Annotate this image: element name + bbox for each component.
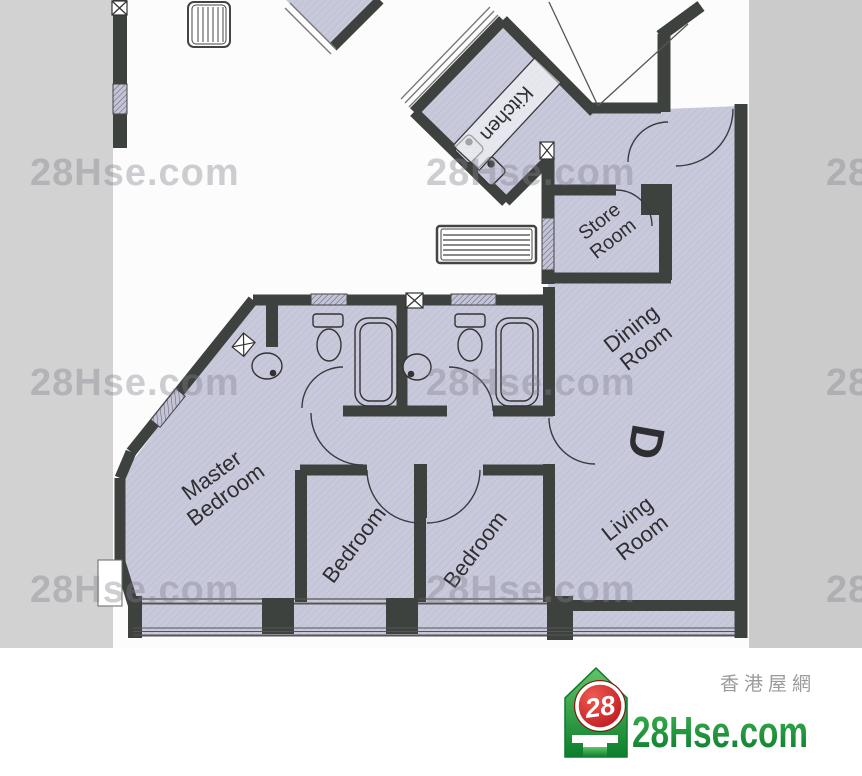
watermark-text: 28Hse.com xyxy=(30,569,240,611)
watermark-text: 28Hse.com xyxy=(426,152,636,194)
property-address: 柯士甸道1號 xyxy=(12,686,534,714)
bathtub-icon xyxy=(355,318,397,406)
property-info-bar: 擎天半島 / Sorrento 柯士甸道1號 6座 TOWER 6 998sqf… xyxy=(0,648,862,776)
floor-plan-image: Kitchen Store Room Dining Room D Living … xyxy=(0,0,862,648)
toilet-icon xyxy=(455,314,485,361)
property-title: 擎天半島 / Sorrento xyxy=(12,653,534,684)
left-gray-margin xyxy=(0,0,113,648)
watermark-text: 28Hse.com xyxy=(826,569,862,611)
property-info-panel: 擎天半島 / Sorrento 柯士甸道1號 6座 TOWER 6 998sqf… xyxy=(0,648,534,776)
watermark-text: 28Hse.com xyxy=(426,362,636,404)
watermark-text: 28Hse.com xyxy=(826,362,862,404)
logo-site-name: 28Hse.com xyxy=(632,708,808,757)
property-tower: 6座 TOWER 6 xyxy=(12,718,534,742)
house-icon: 28 xyxy=(565,668,627,757)
logo-site-name-chinese: 香港屋網 xyxy=(720,673,816,695)
logo-badge-number: 28 xyxy=(582,690,617,724)
right-gray-margin xyxy=(749,0,862,648)
louver-window-icon-vertical xyxy=(188,2,230,47)
sink-icon xyxy=(252,353,282,379)
property-area: 998sqf(建築面積 Gross Area), 755 sqf(實用面積 Sa… xyxy=(12,742,534,762)
site-logo: 28 28Hse.com 香港屋網 xyxy=(503,648,862,776)
watermark-text: 28Hse.com xyxy=(426,569,636,611)
louver-window-icon-horizontal xyxy=(437,226,536,263)
watermark-text: 28Hse.com xyxy=(30,152,240,194)
floorplan-page: Kitchen Store Room Dining Room D Living … xyxy=(0,0,862,776)
watermark-text: 28Hse.com xyxy=(30,362,240,404)
watermark-text: 28Hse.com xyxy=(826,152,862,194)
